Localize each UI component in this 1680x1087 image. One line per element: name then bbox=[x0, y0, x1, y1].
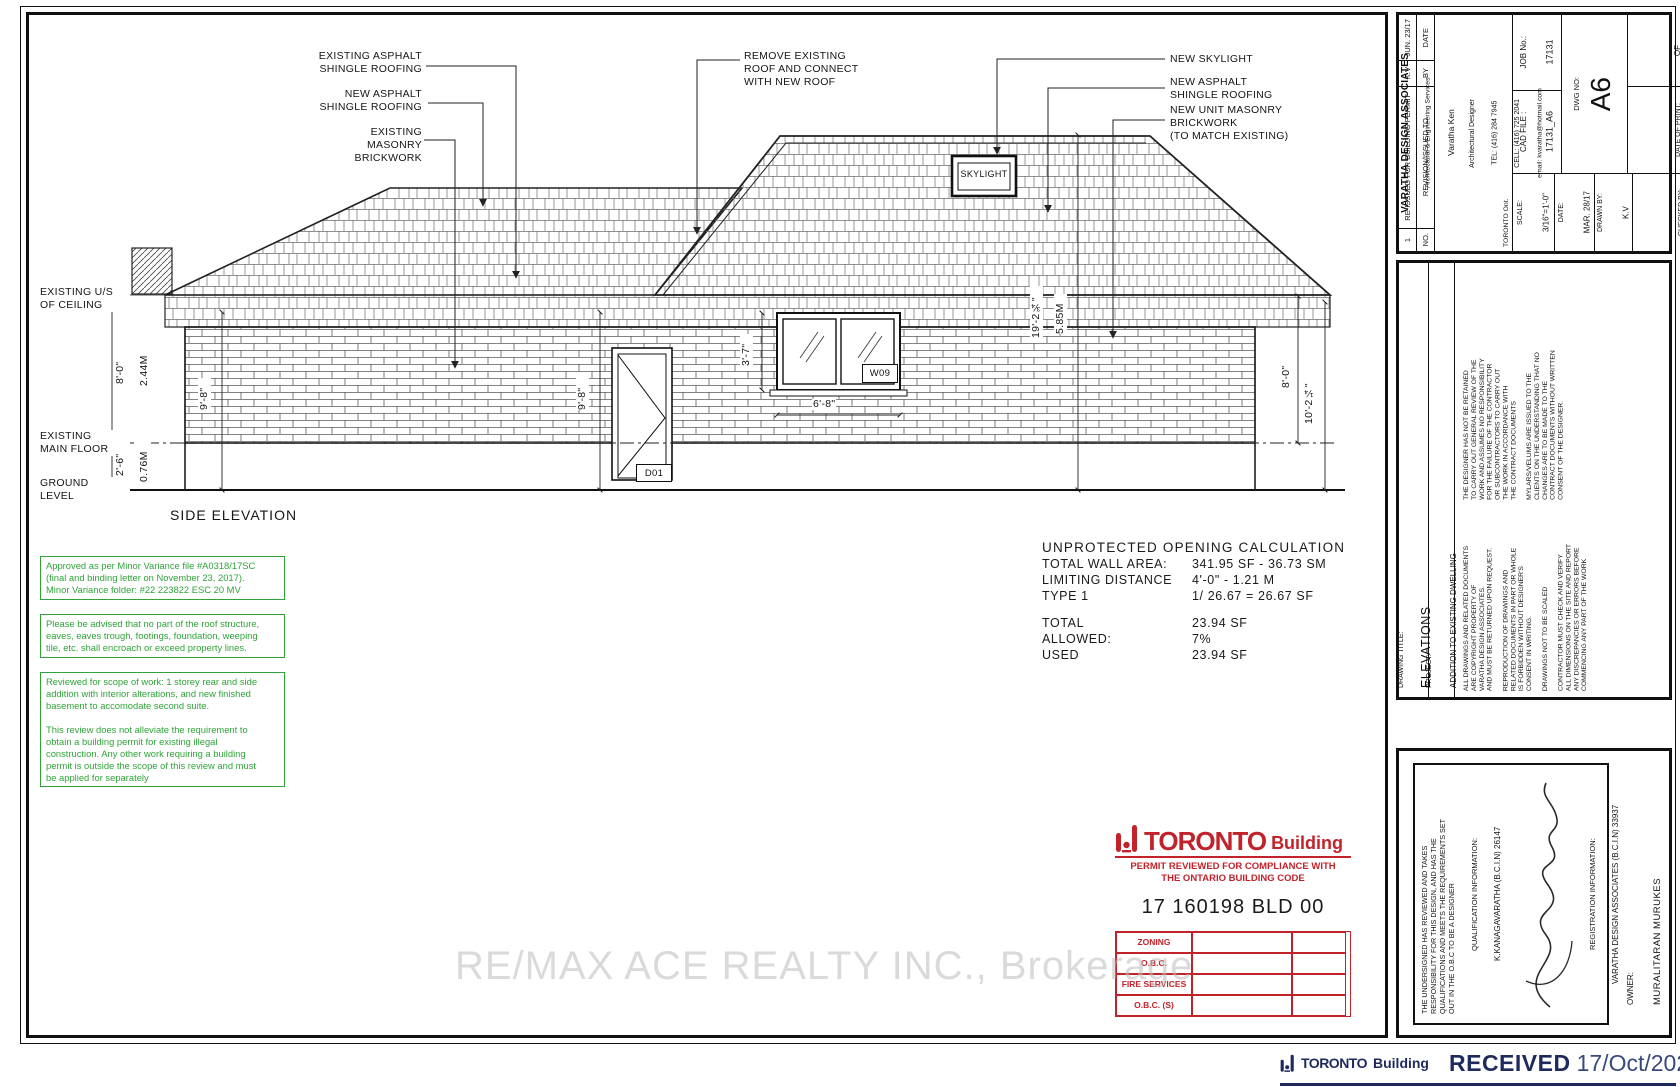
level-ceiling-label: EXISTING U/S OF CEILING bbox=[40, 286, 130, 312]
drawn-by-label: DRAWN BY: bbox=[1597, 193, 1604, 232]
disclaimer-designer: THE DESIGNER HAS NOT BE RETAINED TO CARR… bbox=[1463, 303, 1565, 500]
revision-h-no: NO. bbox=[1421, 233, 1430, 246]
received-suffix: Building bbox=[1373, 1055, 1429, 1071]
print-date-label: DATE OF PRINT: bbox=[1675, 103, 1680, 157]
received-underline bbox=[1280, 1083, 1676, 1086]
opening-calculation: UNPROTECTED OPENING CALCULATION TOTAL WA… bbox=[1042, 540, 1352, 662]
dim-base-ft: 2'-6" bbox=[114, 446, 127, 476]
titleblock-top: JUN. 23/17 K.V RE-ISSUED FOR BUILDING PE… bbox=[1396, 12, 1672, 254]
dim-right-ft: 8'-0" bbox=[1280, 354, 1293, 388]
company-services: Architectural & Engineering Services bbox=[1425, 78, 1432, 188]
owner-block: OWNER: MURALITARAN MURUKES bbox=[1617, 785, 1671, 1005]
toronto-stamp-brand: TORONTO bbox=[1144, 828, 1266, 854]
callout-new-asphalt-right: NEW ASPHALT SHINGLE ROOFING bbox=[1170, 76, 1290, 102]
owner-name: MURALITARAN MURUKES bbox=[1652, 878, 1663, 1005]
calc-value: 4'-0" - 1.21 M bbox=[1192, 573, 1275, 587]
drawing-caption: SIDE ELEVATION bbox=[170, 507, 297, 523]
brokerage-watermark: RE/MAX ACE REALTY INC., Brokerage bbox=[455, 944, 1193, 989]
calc-value: 7% bbox=[1192, 632, 1211, 646]
received-brand: TORONTO bbox=[1301, 1055, 1367, 1071]
calc-value: 341.95 SF - 36.73 SM bbox=[1192, 557, 1326, 571]
calc-label: LIMITING DISTANCE bbox=[1042, 573, 1192, 587]
date-label: DATE: bbox=[1558, 202, 1565, 222]
designer-declaration-box: THE UNDERSIGNED HAS REVIEWED AND TAKES R… bbox=[1413, 763, 1609, 1025]
calc-value: 23.94 SF bbox=[1192, 648, 1248, 662]
revision-no: 1 bbox=[1403, 238, 1412, 242]
received-word: RECEIVED bbox=[1449, 1050, 1571, 1077]
disclaimer-block: THE DESIGNER HAS NOT BE RETAINED TO CARR… bbox=[1455, 263, 1669, 697]
sheet-of-label: OF bbox=[1673, 45, 1680, 56]
signature-area bbox=[1516, 771, 1574, 1017]
dim-nine8-b: 9'-8" bbox=[576, 378, 589, 410]
callout-existing-asphalt: EXISTING ASPHALT SHINGLE ROOFING bbox=[318, 50, 422, 76]
callout-new-asphalt-left: NEW ASPHALT SHINGLE ROOFING bbox=[318, 88, 422, 114]
scope-review-stamp: Reviewed for scope of work: 1 storey rea… bbox=[40, 672, 285, 787]
dim-total-ft: 19'-2¾" bbox=[1030, 286, 1043, 338]
calc-label: TYPE 1 bbox=[1042, 589, 1192, 603]
dim-right-total: 10'-2¼" bbox=[1303, 370, 1316, 424]
dwg-no-label: DWG NO: bbox=[1572, 77, 1581, 111]
drawing-title-label: DRAWING TITLE: bbox=[1398, 632, 1405, 688]
registration-label: REGISTRATION INFORMATION: bbox=[1588, 838, 1597, 950]
declaration-statement: THE UNDERSIGNED HAS REVIEWED AND TAKES R… bbox=[1420, 774, 1456, 1014]
cad-file: 17131_A6 bbox=[1545, 111, 1555, 152]
disclaimer-copyright: ALL DRAWINGS AND RELATED DOCUMENTS ARE C… bbox=[1463, 508, 1589, 691]
qualification-value: K.KANAGAVARATHA (B.C.I.N) 26147 bbox=[1493, 827, 1502, 961]
titleblock-bottom: THE UNDERSIGNED HAS REVIEWED AND TAKES R… bbox=[1396, 748, 1672, 1038]
company-name: VARATHA DESIGN ASSOCIATES bbox=[1400, 53, 1411, 213]
callout-new-skylight: NEW SKYLIGHT bbox=[1170, 53, 1300, 66]
review-row-label: O.B.C. (S) bbox=[1116, 995, 1192, 1016]
stamp-divider bbox=[1115, 856, 1351, 858]
received-stamp: TORONTO Building RECEIVED 17/Oct/2023 bbox=[1280, 1046, 1680, 1080]
titleblock-middle: DRAWING TITLE: ELEVATIONS PROJECT: ADDIT… bbox=[1396, 260, 1672, 700]
project-label: PROJECT: bbox=[1426, 654, 1433, 688]
qualification-info: QUALIFICATION INFORMATION: K.KANAGAVARAT… bbox=[1463, 774, 1509, 1014]
signature bbox=[1516, 771, 1574, 1019]
owner-label: OWNER: bbox=[1626, 972, 1635, 1005]
scale-label: SCALE: bbox=[1517, 200, 1524, 225]
toronto-logo-icon bbox=[1115, 824, 1139, 854]
dim-wall-m: 2.44M bbox=[138, 346, 151, 386]
revision-h-date: DATE bbox=[1421, 28, 1430, 47]
dim-window-width: 6'-8" bbox=[812, 399, 836, 410]
dim-total-m: 5.85M bbox=[1054, 294, 1067, 334]
calc-value: 23.94 SF bbox=[1192, 616, 1248, 630]
dim-wall-ft: 8'-0" bbox=[114, 350, 127, 384]
calc-value: 1/ 26.67 = 26.67 SF bbox=[1192, 589, 1314, 603]
calc-title: UNPROTECTED OPENING CALCULATION bbox=[1042, 540, 1352, 555]
qualification-label: QUALIFICATION INFORMATION: bbox=[1470, 837, 1479, 950]
dim-nine8-a: 9'-8" bbox=[198, 378, 211, 410]
cad-file-label: CAD FILE : bbox=[1519, 112, 1528, 152]
dwg-no: A6 bbox=[1585, 77, 1617, 111]
company-tel: TEL: (416) 284 7945 bbox=[1492, 101, 1499, 165]
level-ground-label: GROUND LEVEL bbox=[40, 477, 130, 503]
received-date: 17/Oct/2023 bbox=[1577, 1050, 1680, 1077]
drawn-by: K.V bbox=[1622, 206, 1631, 219]
calc-label: TOTAL WALL AREA: bbox=[1042, 557, 1192, 571]
company-block: VARATHA DESIGN ASSOCIATES Architectural … bbox=[1435, 15, 1513, 251]
callout-new-masonry: NEW UNIT MASONRY BRICKWORK (TO MATCH EXI… bbox=[1170, 104, 1305, 143]
stamp-line2: THE ONTARIO BUILDING CODE bbox=[1115, 873, 1351, 885]
dim-base-m: 0.76M bbox=[138, 442, 151, 482]
calc-label: ALLOWED: bbox=[1042, 632, 1192, 646]
calc-label: USED bbox=[1042, 648, 1192, 662]
property-line-stamp: Please be advised that no part of the ro… bbox=[40, 614, 285, 658]
revision-date: JUN. 23/17 bbox=[1403, 19, 1412, 57]
toronto-mini-logo-icon bbox=[1280, 1054, 1295, 1073]
minor-variance-stamp: Approved as per Minor Variance file #A03… bbox=[40, 556, 285, 600]
door-tag: D01 bbox=[636, 464, 672, 482]
job-info-block: JOB No.: 17131 CAD FILE : 17131_A6 DWG N… bbox=[1513, 15, 1680, 251]
company-role: Architectural Designer bbox=[1469, 99, 1476, 168]
stamp-line1: PERMIT REVIEWED FOR COMPLIANCE WITH bbox=[1115, 861, 1351, 873]
calc-label: TOTAL bbox=[1042, 616, 1192, 630]
skylight-tag: SKYLIGHT bbox=[956, 169, 1012, 179]
callout-remove-roof: REMOVE EXISTING ROOF AND CONNECT WITH NE… bbox=[744, 50, 864, 89]
callout-existing-masonry: EXISTING MASONRY BRICKWORK bbox=[318, 126, 422, 165]
job-number-label: JOB No.: bbox=[1519, 36, 1528, 68]
window-tag: W09 bbox=[862, 364, 898, 383]
permit-number: 17 160198 BLD 00 bbox=[1115, 896, 1351, 919]
project-block: PROJECT: ADDITION TO EXISTING DWELLING bbox=[1429, 263, 1455, 697]
toronto-stamp-suffix: Building bbox=[1271, 834, 1343, 854]
dim-window-height: 3'-7" bbox=[740, 334, 753, 366]
project-name: ADDITION TO EXISTING DWELLING bbox=[1449, 553, 1458, 688]
job-number: 17131 bbox=[1545, 40, 1555, 65]
company-person: Varatha Ken bbox=[1446, 110, 1456, 157]
